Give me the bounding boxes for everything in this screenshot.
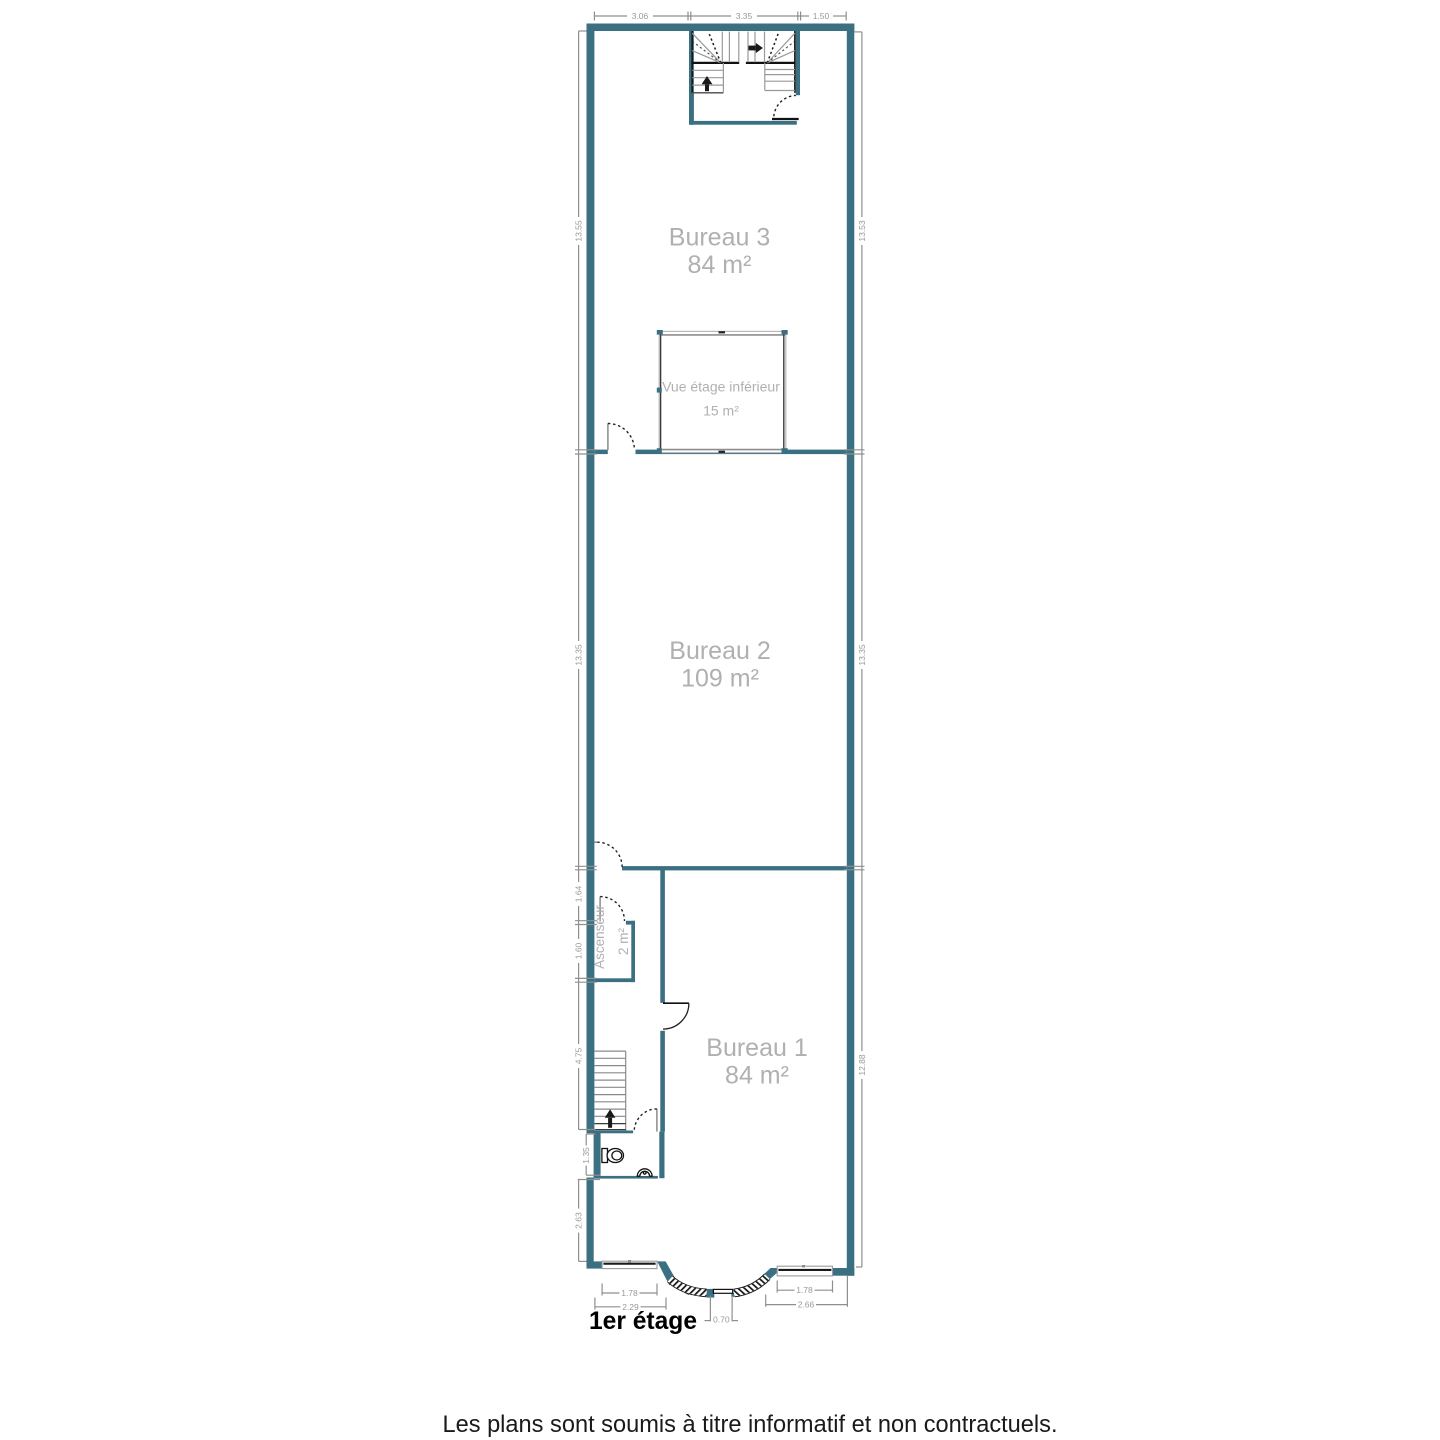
svg-text:15 m²: 15 m²	[703, 403, 739, 419]
svg-text:13.35: 13.35	[574, 644, 584, 666]
svg-text:13.35: 13.35	[857, 644, 867, 666]
svg-text:2.63: 2.63	[574, 1212, 584, 1229]
svg-text:1.50: 1.50	[813, 11, 830, 21]
svg-text:1.78: 1.78	[796, 1285, 813, 1295]
svg-text:2 m²: 2 m²	[616, 927, 631, 955]
svg-text:13.55: 13.55	[574, 220, 584, 242]
svg-text:1er étage: 1er étage	[589, 1308, 697, 1335]
svg-text:84 m²: 84 m²	[725, 1062, 789, 1090]
svg-text:13.53: 13.53	[857, 220, 867, 242]
svg-text:1.64: 1.64	[574, 885, 584, 902]
svg-text:Ascenseur: Ascenseur	[592, 905, 607, 969]
svg-text:Bureau 1: Bureau 1	[706, 1034, 807, 1062]
svg-text:1.78: 1.78	[621, 1288, 638, 1298]
svg-text:3.06: 3.06	[632, 11, 649, 21]
svg-text:Bureau 2: Bureau 2	[669, 637, 770, 665]
svg-text:109 m²: 109 m²	[681, 665, 759, 693]
svg-text:1.35: 1.35	[581, 1147, 591, 1164]
svg-text:Vue étage inférieur: Vue étage inférieur	[662, 379, 780, 395]
svg-text:1.60: 1.60	[574, 942, 584, 959]
svg-text:12.88: 12.88	[857, 1054, 867, 1076]
svg-text:0.70: 0.70	[713, 1315, 730, 1325]
svg-text:4.75: 4.75	[574, 1047, 584, 1064]
svg-text:84 m²: 84 m²	[688, 251, 752, 279]
svg-text:3.35: 3.35	[736, 11, 753, 21]
svg-text:2.66: 2.66	[798, 1300, 815, 1310]
svg-text:Bureau 3: Bureau 3	[669, 224, 770, 252]
